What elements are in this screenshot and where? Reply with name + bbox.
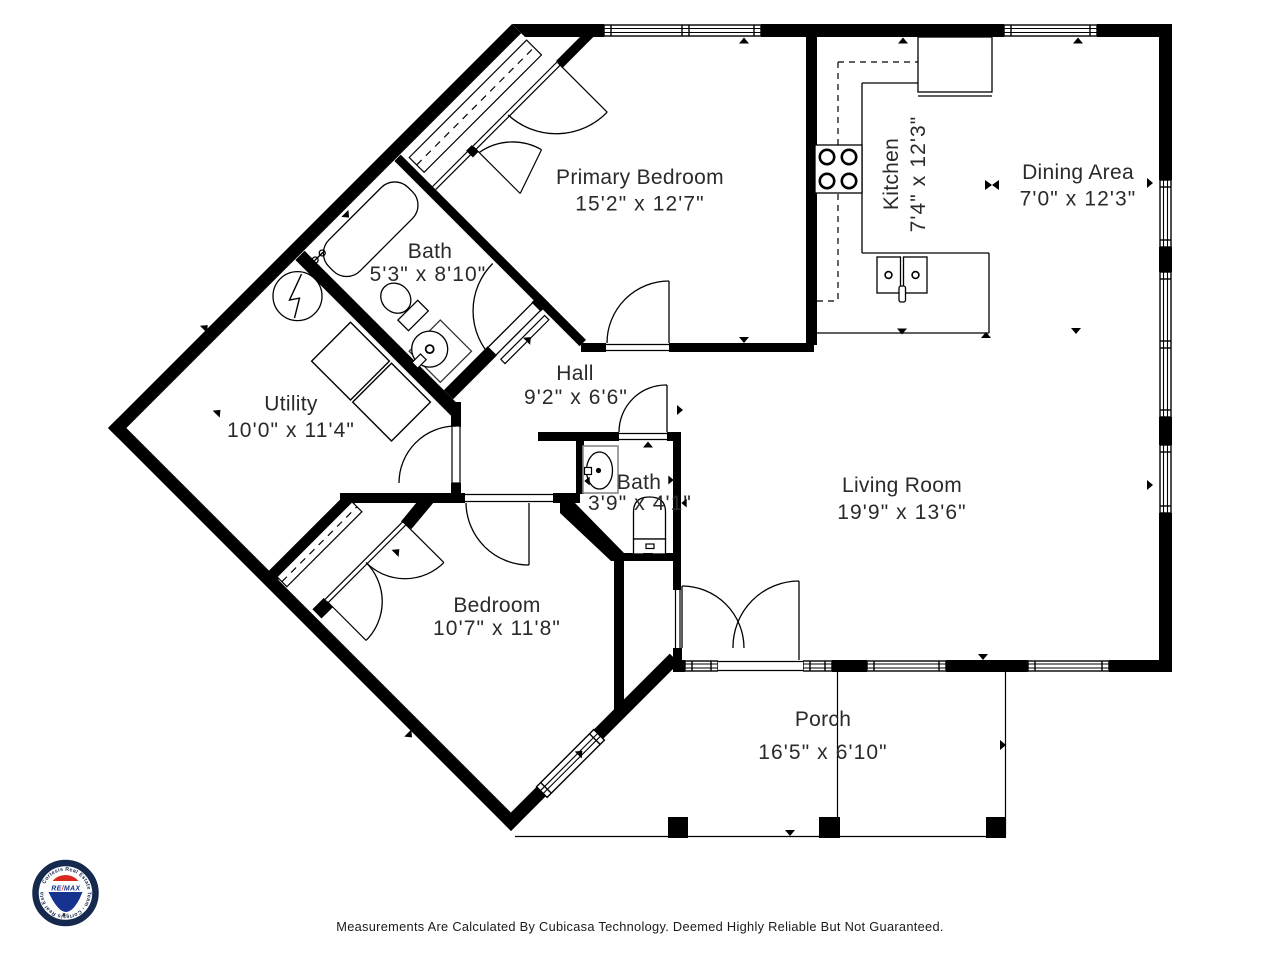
svg-text:Primary Bedroom: Primary Bedroom bbox=[556, 166, 724, 189]
svg-text:9'2" x 6'6": 9'2" x 6'6" bbox=[524, 386, 628, 409]
svg-text:19'9" x 13'6": 19'9" x 13'6" bbox=[837, 501, 966, 524]
svg-text:16'5" x 6'10": 16'5" x 6'10" bbox=[758, 741, 887, 764]
svg-text:Hall: Hall bbox=[556, 362, 593, 385]
svg-text:Utility: Utility bbox=[264, 393, 318, 416]
svg-text:Bedroom: Bedroom bbox=[453, 594, 540, 617]
svg-text:Kitchen: Kitchen bbox=[880, 138, 903, 210]
svg-text:Porch: Porch bbox=[795, 708, 851, 731]
svg-text:7'4" x 12'3": 7'4" x 12'3" bbox=[907, 116, 930, 233]
svg-text:15'2" x 12'7": 15'2" x 12'7" bbox=[575, 193, 704, 216]
svg-text:Living Room: Living Room bbox=[842, 474, 962, 497]
svg-text:Bath: Bath bbox=[408, 240, 452, 263]
svg-text:5'3" x 8'10": 5'3" x 8'10" bbox=[370, 263, 487, 286]
svg-text:RE/MAX: RE/MAX bbox=[51, 885, 81, 892]
svg-text:10'0" x 11'4": 10'0" x 11'4" bbox=[227, 419, 355, 442]
svg-text:10'7" x 11'8": 10'7" x 11'8" bbox=[433, 617, 561, 640]
svg-text:Measurements Are Calculated By: Measurements Are Calculated By Cubicasa … bbox=[336, 919, 943, 934]
svg-text:Dining Area: Dining Area bbox=[1022, 161, 1134, 184]
svg-text:7'0" x 12'3": 7'0" x 12'3" bbox=[1020, 188, 1137, 211]
svg-text:3'9" x 4'1": 3'9" x 4'1" bbox=[588, 492, 692, 515]
svg-text:Bath: Bath bbox=[617, 471, 661, 494]
